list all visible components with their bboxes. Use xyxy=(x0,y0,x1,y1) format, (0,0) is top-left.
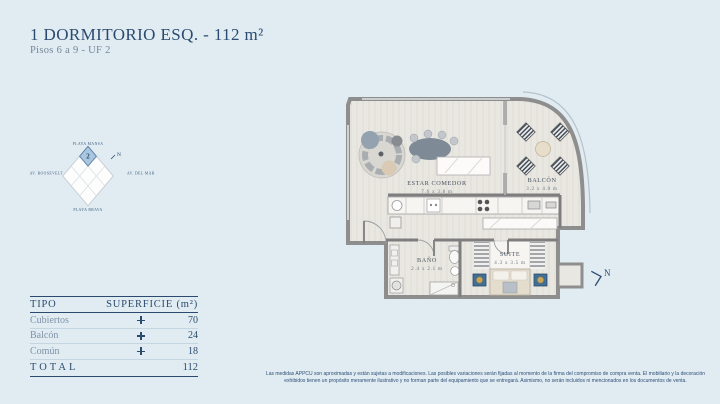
row-tipo: Común xyxy=(30,346,124,357)
row-value: 18 xyxy=(158,346,198,357)
sofa-cluster xyxy=(359,131,405,178)
brochure-page: 1 DORMITORIO ESQ. - 112 m² Pisos 6 a 9 -… xyxy=(0,0,720,404)
col-tipo: TIPO xyxy=(30,299,57,310)
room-label-balcon: BALCÓN xyxy=(527,176,556,184)
page-subtitle: Pisos 6 a 9 - UF 2 xyxy=(30,45,111,56)
table-row: Común 18 xyxy=(30,344,198,360)
room-dims-balcon: 3.2 x 4.0 m xyxy=(526,187,557,192)
label-av-roosevelt: AV. ROOSEVELT xyxy=(30,172,64,176)
total-value: 112 xyxy=(183,362,198,373)
kitchen-counter xyxy=(388,197,560,214)
row-value: 24 xyxy=(158,330,198,341)
cross-icon xyxy=(137,316,145,324)
row-tipo: Balcón xyxy=(30,330,124,341)
room-dims-bano: 2.4 x 2.1 m xyxy=(411,267,442,272)
kitchen-round-sink xyxy=(392,201,402,211)
duct-shaft xyxy=(390,217,401,228)
surface-table: TIPO SUPERFICIE (m²) Cubiertos 70 Balcón… xyxy=(30,296,198,377)
floor-plan: ESTAR COMEDOR 7.6 x 3.8 m BALCÓN 3.2 x 4… xyxy=(330,85,620,320)
table-row: Balcón 24 xyxy=(30,329,198,345)
appliance xyxy=(528,201,540,209)
row-tipo: Cubiertos xyxy=(30,315,124,326)
legal-disclaimer: Las medidas APPCU son aproximadas y está… xyxy=(263,371,708,386)
table-row: Cubiertos 70 xyxy=(30,313,198,329)
bathroom-sink xyxy=(451,267,460,276)
label-av-del-mar: AV. DEL MAR xyxy=(127,172,155,176)
appliance xyxy=(546,202,556,208)
room-dims-estar-comedor: 7.6 x 3.8 m xyxy=(421,190,452,195)
balcony-table xyxy=(536,142,551,157)
cross-icon xyxy=(137,347,145,355)
label-playa-brava: PLAYA BRAVA xyxy=(73,208,102,212)
room-label-estar-comedor: ESTAR COMEDOR xyxy=(407,180,467,187)
wardrobe-right xyxy=(530,242,545,269)
locator-north-icon: N xyxy=(111,152,121,159)
location-diagram: 2 PLAYA MANSA AV. ROOSEVELT AV. DEL MAR … xyxy=(24,134,164,218)
col-superficie: SUPERFICIE (m²) xyxy=(106,299,198,310)
kitchen-island xyxy=(483,218,557,229)
svg-text:N: N xyxy=(604,268,611,278)
svg-text:N: N xyxy=(117,152,121,158)
kitchen-sink xyxy=(427,199,440,212)
table-total-row: TOTAL 112 xyxy=(30,360,198,377)
table-header: TIPO SUPERFICIE (m²) xyxy=(30,296,198,313)
total-label: TOTAL xyxy=(30,362,78,373)
label-playa-mansa: PLAYA MANSA xyxy=(73,142,104,146)
page-title: 1 DORMITORIO ESQ. - 112 m² xyxy=(30,25,264,45)
wardrobe-left xyxy=(474,242,489,269)
row-value: 70 xyxy=(158,315,198,326)
cross-icon xyxy=(137,332,145,340)
exterior-service-box xyxy=(558,264,582,287)
unit-number: 2 xyxy=(86,153,90,161)
room-label-suite: SUITE xyxy=(500,251,521,258)
plan-north-icon: N xyxy=(591,268,611,286)
room-label-bano: BAÑO xyxy=(417,256,437,264)
room-dims-suite: 4.3 x 3.5 m xyxy=(494,261,525,266)
